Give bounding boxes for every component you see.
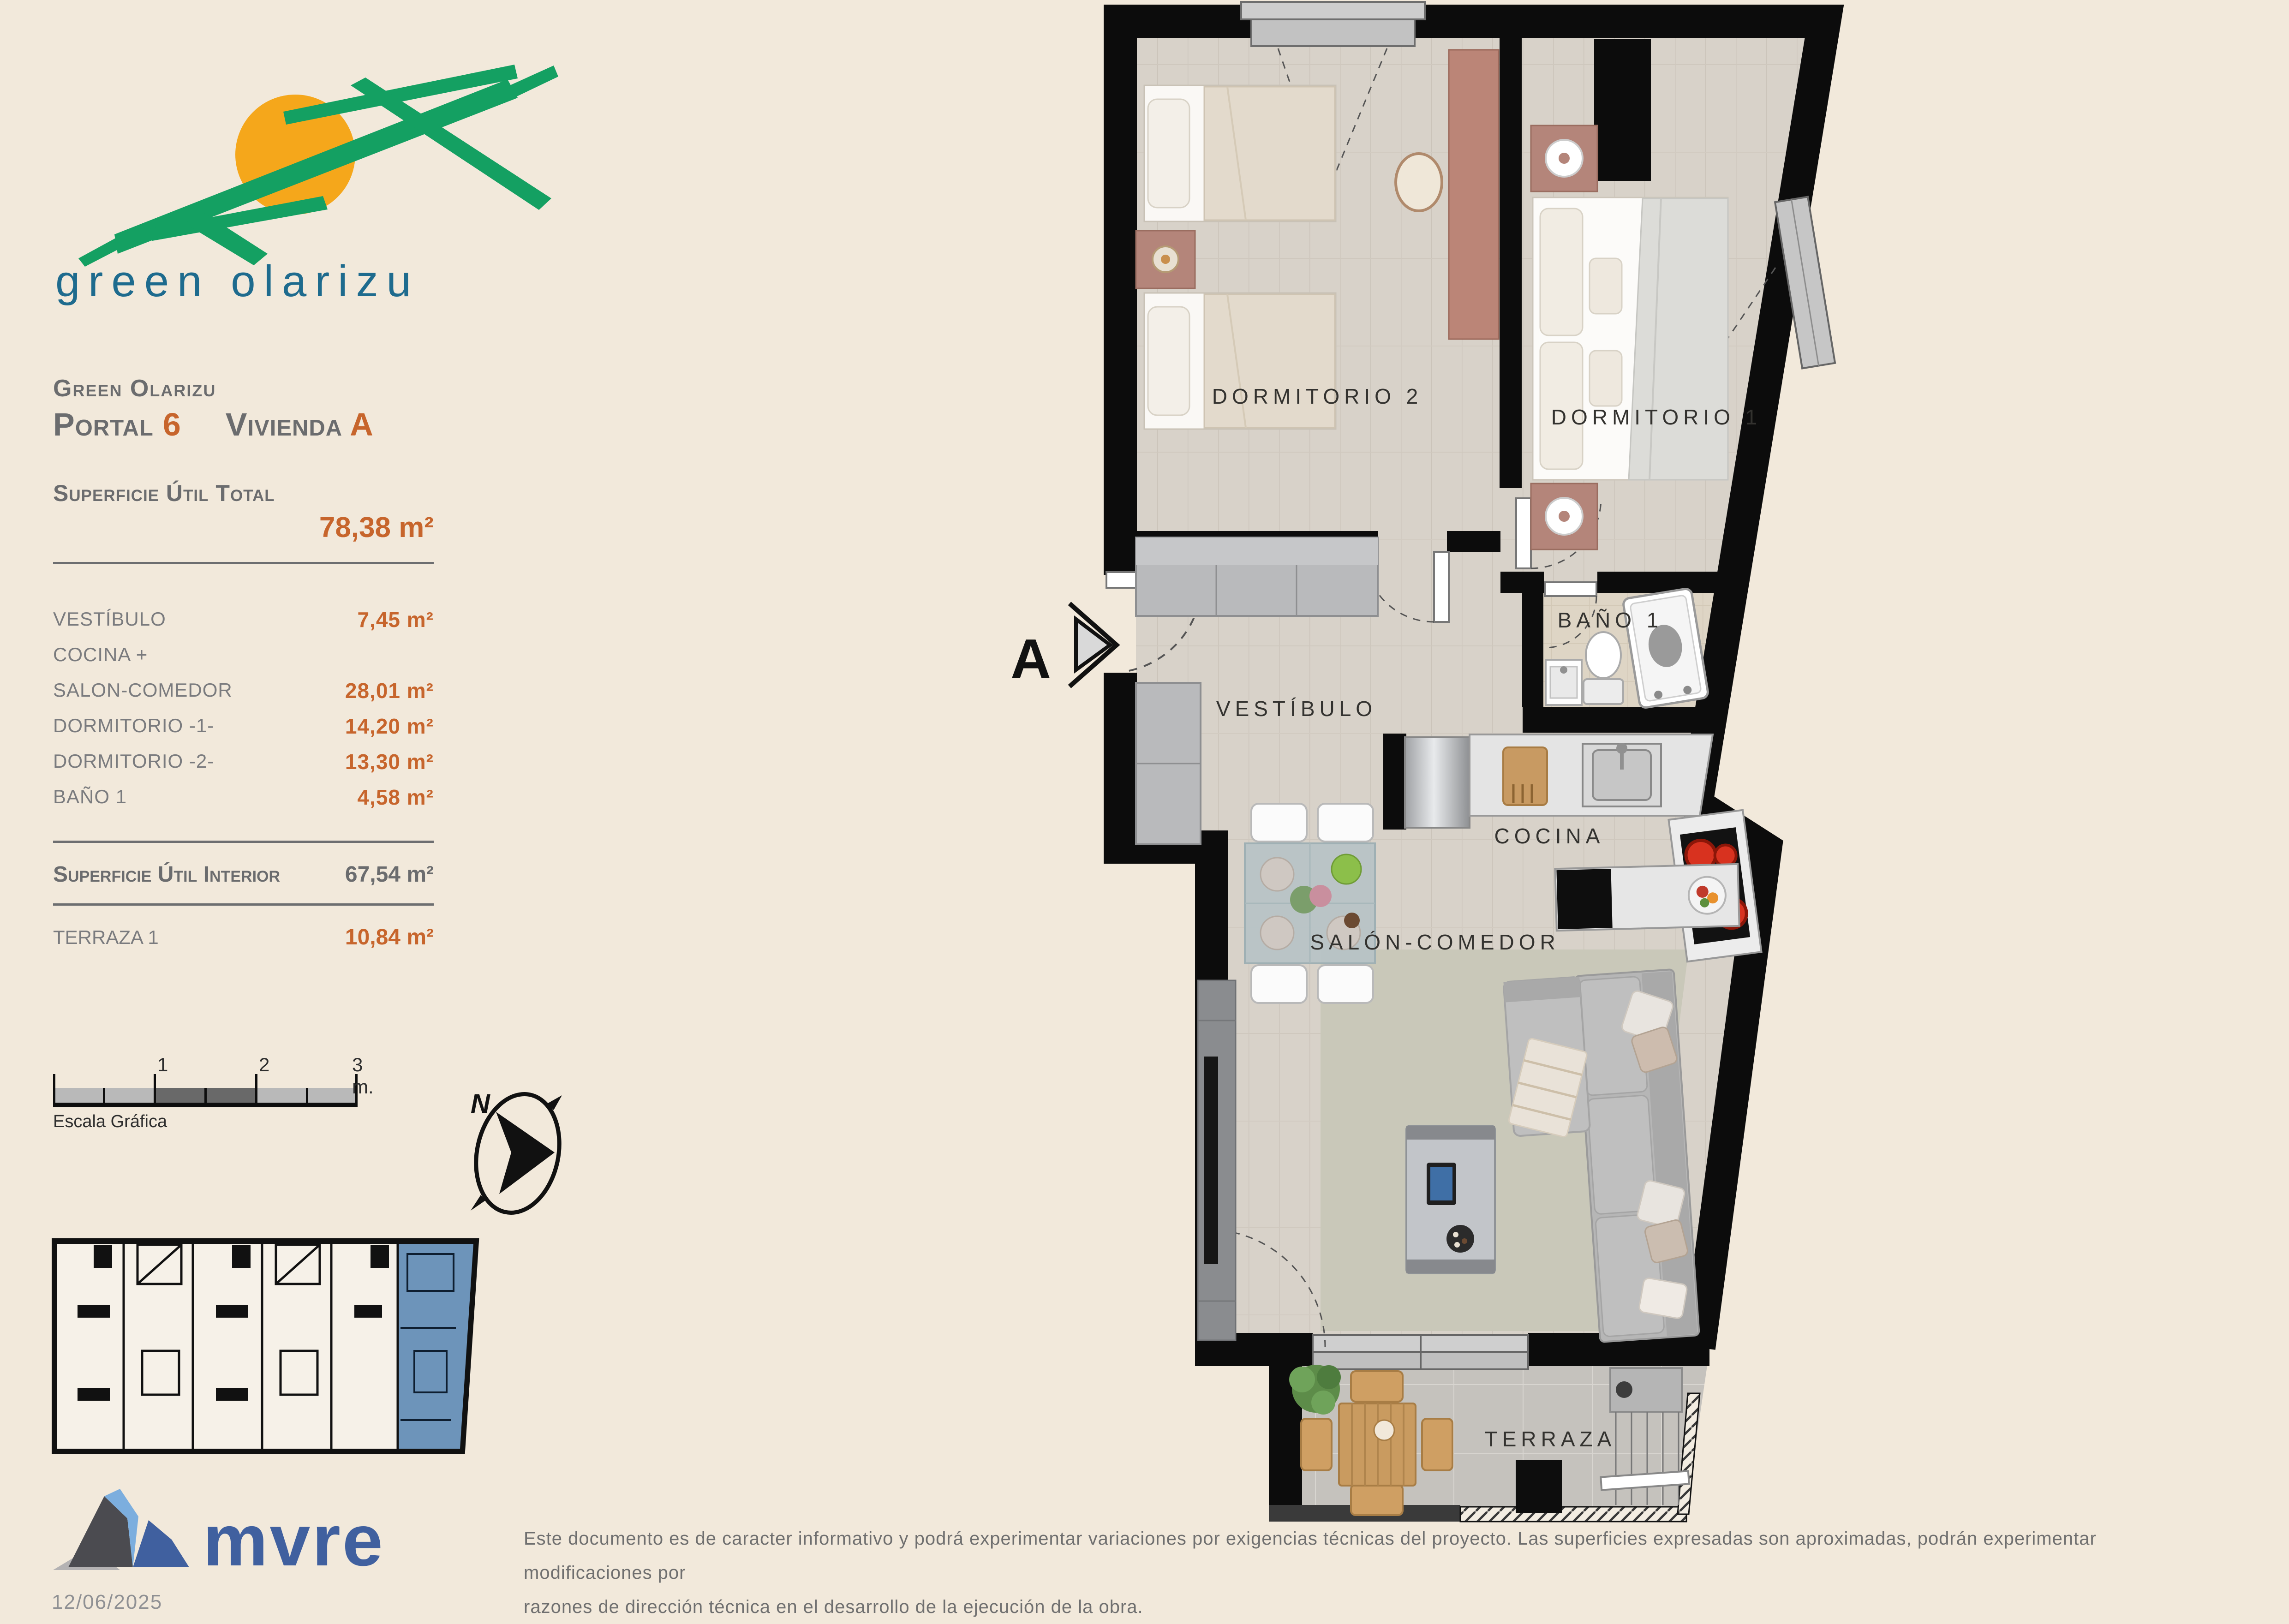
room-label-dormitorio1: DORMITORIO 1 xyxy=(1551,405,1762,429)
single-bed xyxy=(1144,293,1336,429)
dining-chair xyxy=(1318,804,1373,842)
wardrobe xyxy=(1136,683,1201,844)
room-label-terraza: TERRAZA xyxy=(1485,1427,1616,1451)
kitchen-island xyxy=(1555,864,1739,931)
door-bano xyxy=(1545,582,1596,596)
room-label-bano1: BAÑO 1 xyxy=(1558,608,1663,632)
floor-plan-document: green olarizu Green Olarizu Portal6Vivie… xyxy=(0,0,2289,1618)
wardrobe xyxy=(1136,537,1378,616)
salad-plate-icon xyxy=(1332,854,1361,884)
dining-chair xyxy=(1251,804,1307,842)
outdoor-table xyxy=(1339,1403,1416,1486)
room-label-salon: SALÓN-COMEDOR xyxy=(1310,930,1560,954)
room-label-cocina: COCINA xyxy=(1494,824,1605,848)
outdoor-chair xyxy=(1351,1485,1403,1515)
fridge xyxy=(1405,737,1470,828)
cutting-board xyxy=(1503,747,1547,805)
desk-chair xyxy=(1396,154,1442,211)
door-dormitorio2 xyxy=(1434,552,1449,622)
section-marker-a: A xyxy=(1010,627,1051,690)
outdoor-chair xyxy=(1422,1419,1452,1470)
desk xyxy=(1449,50,1499,339)
decor-bowl-icon xyxy=(1446,1225,1474,1253)
bathroom-sink xyxy=(1546,660,1582,705)
door-dormitorio1 xyxy=(1516,498,1531,568)
terraza-pillar xyxy=(1516,1460,1562,1513)
outdoor-chair xyxy=(1301,1419,1332,1470)
coffee-table xyxy=(1406,1126,1495,1273)
dining-chair xyxy=(1318,965,1373,1003)
toilet xyxy=(1584,632,1623,704)
double-bed xyxy=(1533,197,1728,480)
single-bed xyxy=(1144,85,1336,221)
window-dormitorio2 xyxy=(1241,2,1425,19)
tv-icon xyxy=(1204,1057,1218,1264)
room-label-vestibulo: VESTÍBULO xyxy=(1216,697,1377,721)
room-label-dormitorio2: DORMITORIO 2 xyxy=(1212,384,1423,408)
tv-unit xyxy=(1198,980,1236,1340)
dining-chair xyxy=(1251,965,1307,1003)
coffee-cup-icon xyxy=(1344,913,1360,928)
apartment-floor-plan: A DORMITORIO 2 DORMITORIO 1 BAÑO 1 VESTÍ… xyxy=(0,0,2289,1618)
outdoor-chair xyxy=(1351,1371,1403,1402)
terraza-parapet-hatched xyxy=(1460,1507,1686,1522)
